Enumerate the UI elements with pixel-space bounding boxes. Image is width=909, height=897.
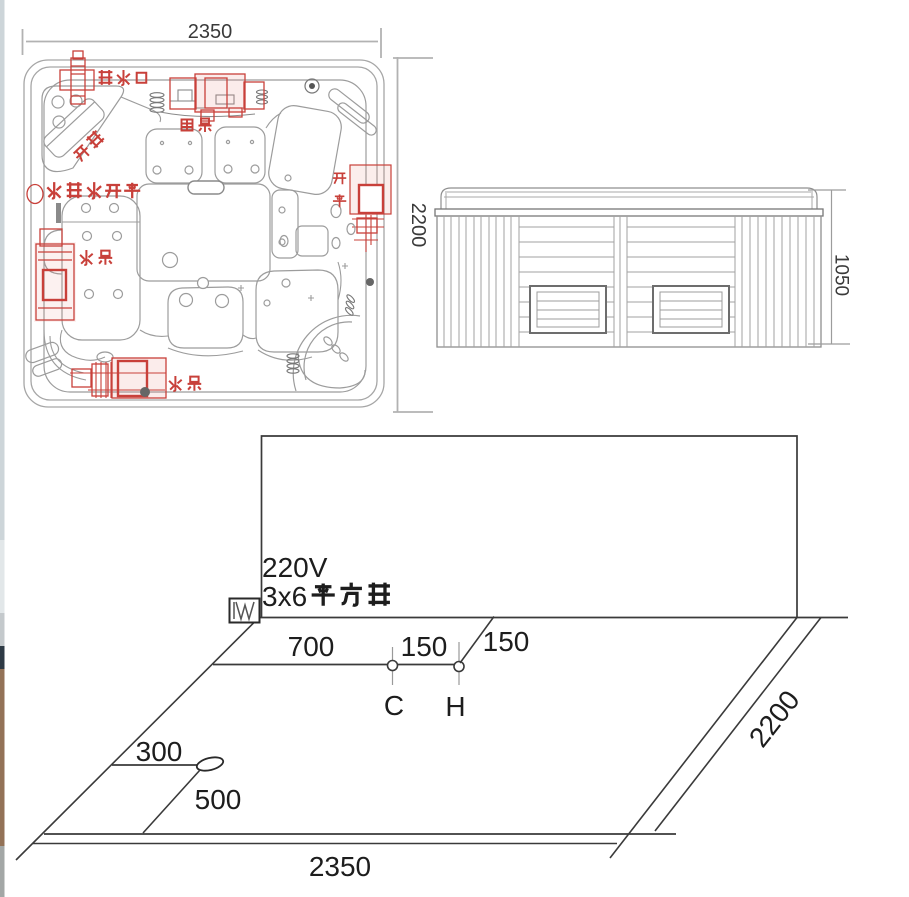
svg-text:700: 700 [288,631,335,662]
svg-text:3x6: 3x6 [262,581,307,612]
svg-text:300: 300 [136,736,183,767]
svg-text:H: H [445,691,465,722]
svg-text:150: 150 [401,631,448,662]
svg-text:C: C [384,690,404,721]
svg-text:2350: 2350 [188,21,233,43]
svg-text:500: 500 [195,784,242,815]
svg-text:220V: 220V [262,552,328,583]
svg-text:2350: 2350 [309,851,371,882]
svg-text:2200: 2200 [743,685,806,753]
svg-text:1050: 1050 [830,254,851,296]
svg-text:2200: 2200 [407,203,429,248]
svg-text:150: 150 [483,626,530,657]
